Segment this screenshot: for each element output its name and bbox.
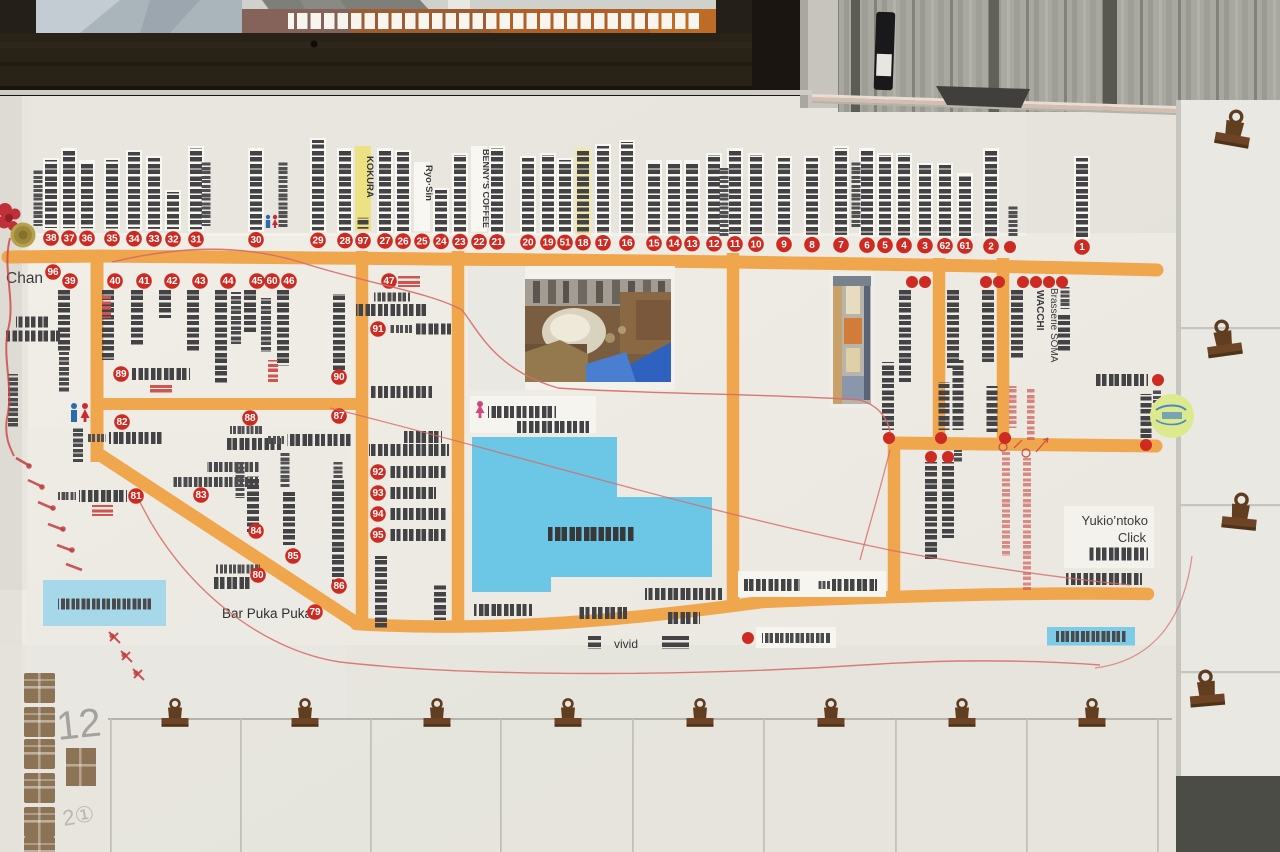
svg-text:79: 79: [309, 607, 321, 618]
svg-text:Bar Puka Puka: Bar Puka Puka: [222, 606, 313, 621]
svg-text:24: 24: [435, 237, 447, 248]
svg-text:33: 33: [148, 234, 160, 245]
svg-text:7: 7: [838, 240, 844, 251]
svg-text:97: 97: [357, 236, 369, 247]
svg-text:40: 40: [109, 276, 121, 287]
svg-text:Yukio’ntoko: Yukio’ntoko: [1082, 513, 1149, 528]
svg-text:32: 32: [167, 234, 179, 245]
svg-text:Ryo·Sin: Ryo·Sin: [423, 165, 434, 201]
svg-text:Chan: Chan: [6, 270, 43, 287]
svg-text:43: 43: [194, 276, 206, 287]
svg-text:88: 88: [244, 413, 256, 424]
svg-text:30: 30: [250, 235, 262, 246]
svg-text:29: 29: [312, 236, 324, 247]
svg-text:Click: Click: [1118, 530, 1147, 545]
svg-text:81: 81: [130, 491, 142, 502]
svg-text:82: 82: [116, 417, 128, 428]
svg-text:4: 4: [901, 241, 907, 252]
svg-text:Brasserie SOMA: Brasserie SOMA: [1048, 288, 1059, 363]
svg-text:86: 86: [333, 581, 345, 592]
svg-text:39: 39: [64, 276, 76, 287]
svg-text:28: 28: [339, 236, 351, 247]
svg-text:96: 96: [47, 267, 59, 278]
svg-text:37: 37: [63, 233, 75, 244]
svg-text:8: 8: [809, 240, 815, 251]
svg-text:93: 93: [372, 488, 384, 499]
svg-text:91: 91: [372, 324, 384, 335]
svg-text:89: 89: [115, 369, 127, 380]
svg-text:95: 95: [372, 530, 384, 541]
svg-text:12: 12: [708, 239, 720, 250]
svg-text:38: 38: [45, 233, 57, 244]
svg-text:1: 1: [1079, 242, 1085, 253]
svg-text:44: 44: [222, 276, 234, 287]
svg-text:42: 42: [166, 276, 178, 287]
svg-text:80: 80: [252, 570, 264, 581]
svg-text:26: 26: [397, 236, 409, 247]
svg-text:6: 6: [864, 240, 870, 251]
svg-text:60: 60: [266, 276, 278, 287]
svg-text:WACCHI: WACCHI: [1034, 290, 1045, 331]
svg-text:84: 84: [250, 526, 262, 537]
svg-text:16: 16: [621, 238, 633, 249]
svg-text:12: 12: [54, 701, 103, 749]
svg-text:22: 22: [473, 237, 485, 248]
svg-text:46: 46: [283, 276, 295, 287]
svg-text:45: 45: [251, 276, 263, 287]
svg-text:90: 90: [333, 372, 345, 383]
svg-text:61: 61: [959, 241, 971, 252]
svg-text:31: 31: [190, 234, 202, 245]
svg-text:41: 41: [138, 276, 150, 287]
svg-text:2: 2: [988, 241, 994, 252]
svg-text:11: 11: [730, 239, 741, 250]
svg-text:vivid: vivid: [614, 637, 638, 651]
svg-text:19: 19: [542, 238, 554, 249]
svg-text:10: 10: [750, 239, 762, 250]
svg-text:35: 35: [106, 234, 118, 245]
svg-text:27: 27: [379, 236, 391, 247]
svg-text:KOKURA: KOKURA: [364, 156, 375, 198]
svg-text:94: 94: [372, 509, 384, 520]
svg-text:34: 34: [128, 234, 140, 245]
svg-text:23: 23: [454, 237, 466, 248]
svg-text:85: 85: [287, 551, 299, 562]
svg-text:5: 5: [882, 240, 888, 251]
svg-text:36: 36: [81, 234, 93, 245]
svg-text:83: 83: [195, 490, 207, 501]
svg-text:92: 92: [372, 467, 384, 478]
svg-text:21: 21: [491, 237, 503, 248]
svg-text:13: 13: [686, 239, 698, 250]
svg-text:87: 87: [333, 411, 345, 422]
svg-text:20: 20: [522, 237, 534, 248]
svg-text:9: 9: [781, 240, 787, 251]
svg-text:51: 51: [559, 238, 571, 249]
svg-text:62: 62: [939, 241, 951, 252]
svg-text:3: 3: [922, 241, 928, 252]
svg-text:14: 14: [668, 239, 680, 250]
svg-text:25: 25: [416, 236, 428, 247]
svg-text:17: 17: [597, 238, 609, 249]
svg-text:18: 18: [577, 238, 589, 249]
svg-text:15: 15: [648, 238, 660, 249]
